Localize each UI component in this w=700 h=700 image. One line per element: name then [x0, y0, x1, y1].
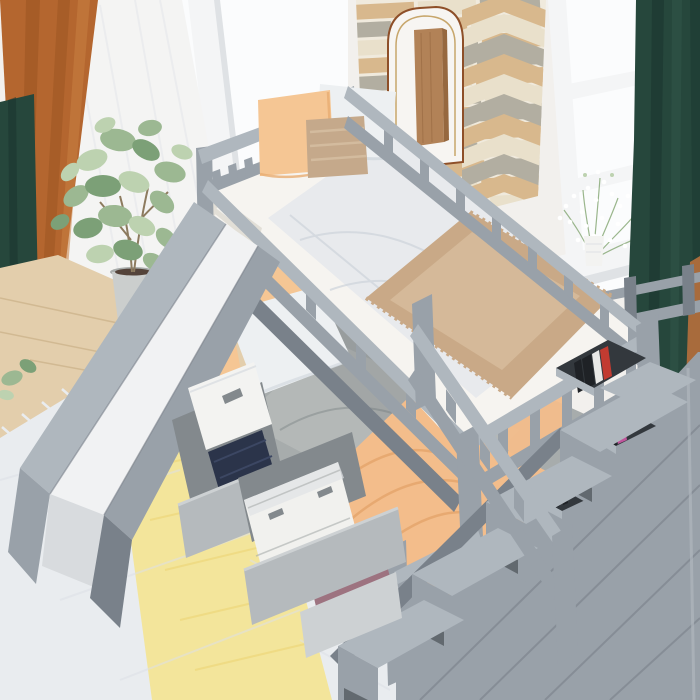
bunk-bed-scene [0, 0, 700, 700]
wood-plank [414, 28, 444, 146]
white-vase [584, 236, 604, 266]
product-photo [0, 0, 700, 700]
